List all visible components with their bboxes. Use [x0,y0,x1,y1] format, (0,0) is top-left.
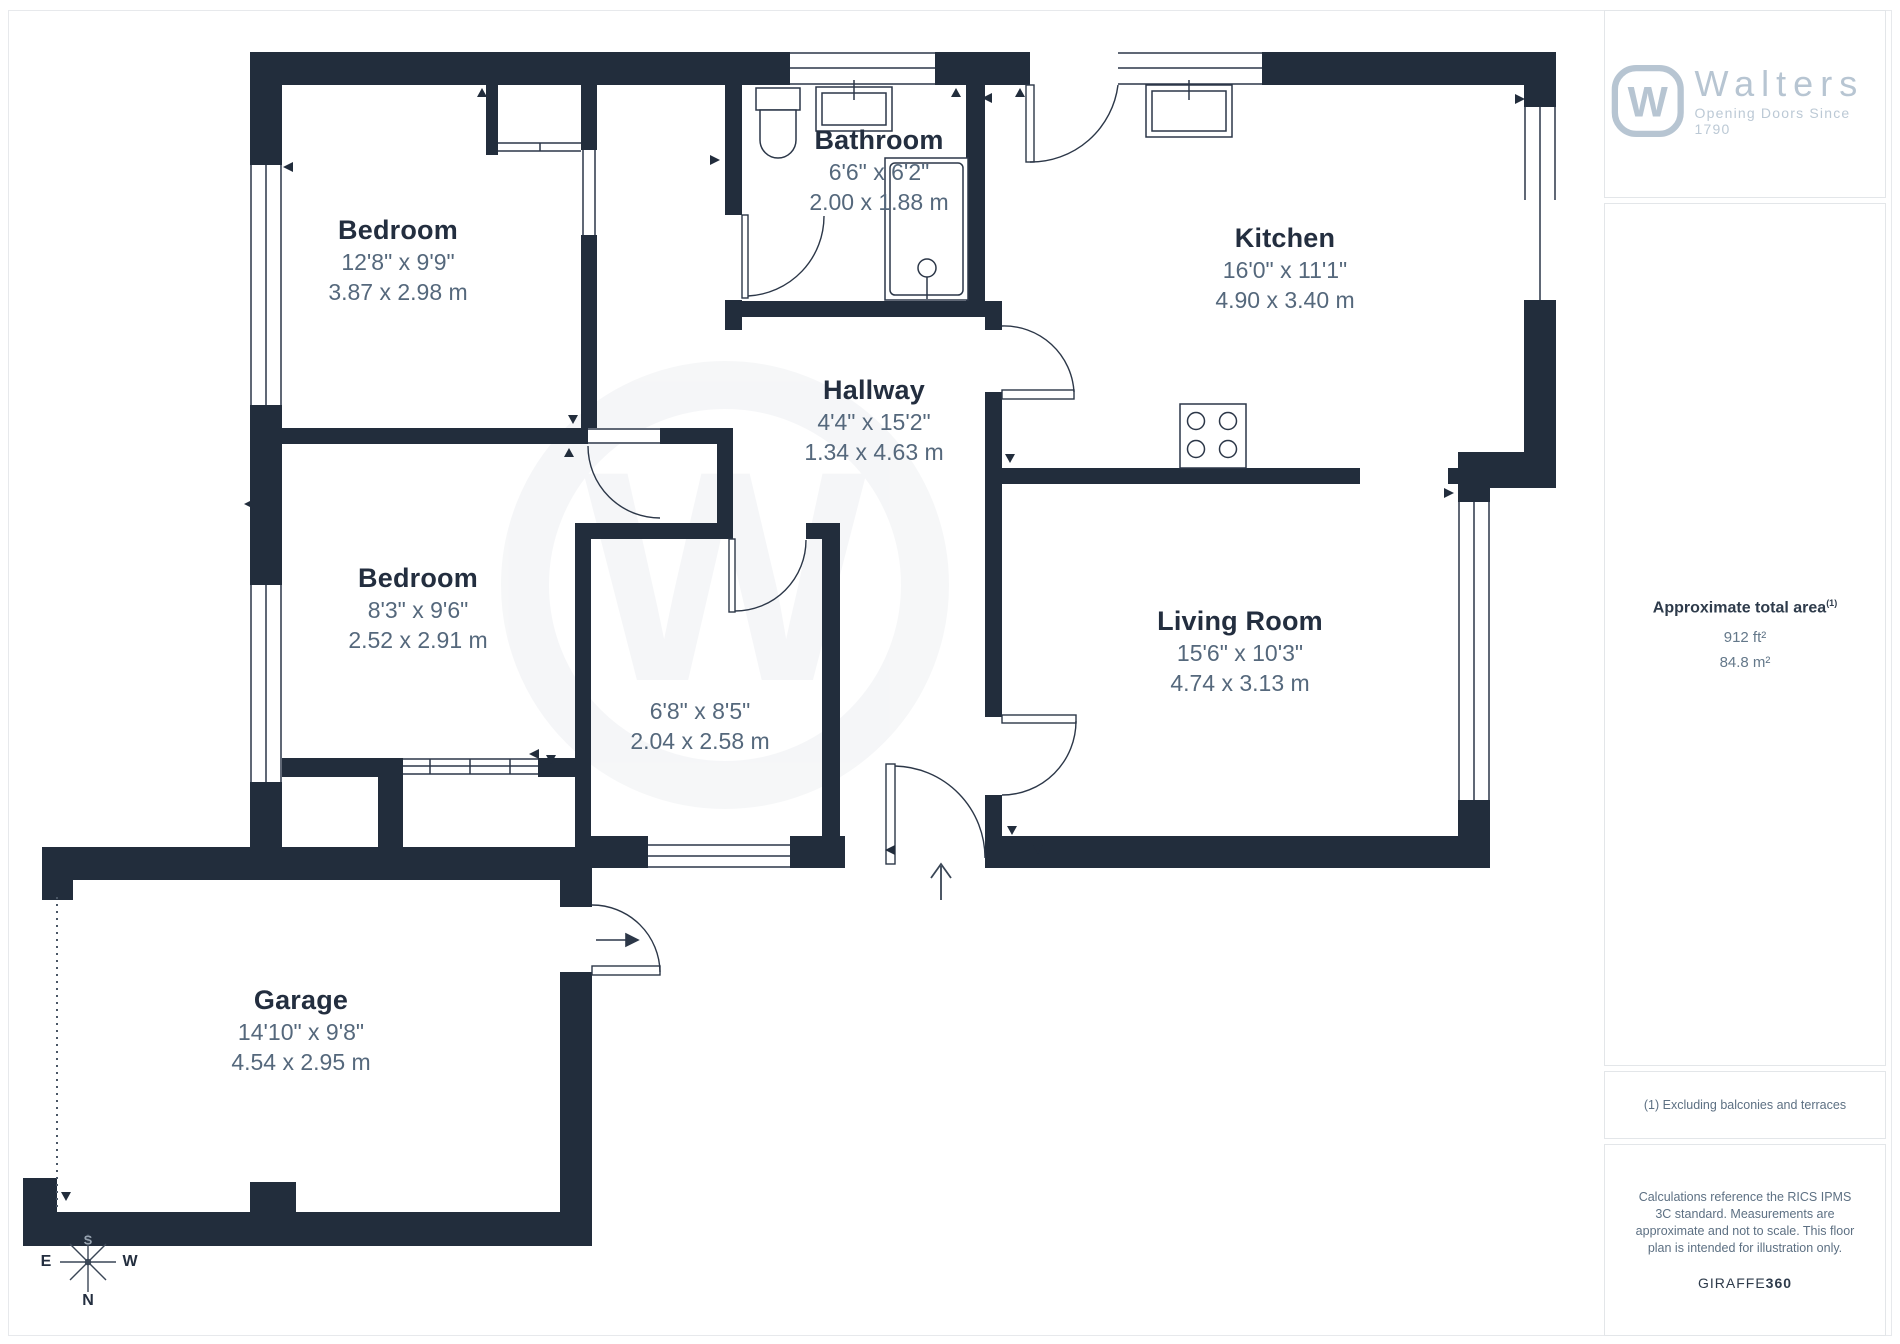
garage-door-arrow [596,934,638,946]
room-name: Garage [231,984,370,1018]
disclaimer-text: Calculations reference the RICS IPMS 3C … [1605,1189,1885,1257]
giraffe360-credit: GIRAFFE360 [1698,1275,1792,1291]
floorplan-drawing: W [0,0,1600,1344]
sidebar-area-panel: Approximate total area(1) 912 ft² 84.8 m… [1604,203,1886,1066]
room-label-store-room: 6'8" x 8'5" 2.04 x 2.58 m [630,697,769,757]
room-dimensions-imperial: 6'8" x 8'5" [630,697,769,727]
room-dimensions-metric: 2.00 x 1.88 m [809,188,948,218]
room-dimensions-metric: 4.74 x 3.13 m [1157,669,1323,699]
sidebar-footnote-panel: (1) Excluding balconies and terraces [1604,1071,1886,1139]
room-name: Kitchen [1215,222,1354,256]
brand-tagline: Opening Doors Since 1790 [1695,105,1885,137]
room-dimensions-imperial: 16'0" x 11'1" [1215,256,1354,286]
total-area-imperial: 912 ft² [1724,629,1767,646]
room-dimensions-metric: 4.90 x 3.40 m [1215,286,1354,316]
room-label-hallway: Hallway 4'4" x 15'2" 1.34 x 4.63 m [804,374,943,468]
room-name: Bedroom [348,562,487,596]
room-dimensions-imperial: 12'8" x 9'9" [328,248,467,278]
room-dimensions-imperial: 15'6" x 10'3" [1157,639,1323,669]
compass-east-label: E [41,1253,52,1271]
room-label-bedroom-1: Bedroom 12'8" x 9'9" 3.87 x 2.98 m [328,214,467,308]
room-name: Bathroom [809,124,948,158]
walters-logo-icon: W [1611,63,1685,139]
room-name: Hallway [804,374,943,408]
room-dimensions-metric: 2.04 x 2.58 m [630,727,769,757]
compass-west-label: W [122,1253,137,1271]
room-label-bedroom-2: Bedroom 8'3" x 9'6" 2.52 x 2.91 m [348,562,487,656]
room-dimensions-imperial: 6'6" x 6'2" [809,158,948,188]
total-area-title: Approximate total area(1) [1653,598,1837,617]
room-label-living-room: Living Room 15'6" x 10'3" 4.74 x 3.13 m [1157,605,1323,699]
room-name: Bedroom [328,214,467,248]
sidebar-logo-panel: W Walters Opening Doors Since 1790 [1604,10,1886,198]
room-label-bathroom: Bathroom 6'6" x 6'2" 2.00 x 1.88 m [809,124,948,218]
footnote-marker: (1) [1826,598,1837,608]
brand-name: Walters [1695,66,1885,102]
sidebar-disclaimer-panel: Calculations reference the RICS IPMS 3C … [1604,1144,1886,1336]
entrance-arrow [931,864,951,900]
room-dimensions-metric: 3.87 x 2.98 m [328,278,467,308]
room-dimensions-imperial: 8'3" x 9'6" [348,596,487,626]
floorplan-page: W [0,0,1900,1344]
room-dimensions-imperial: 14'10" x 9'8" [231,1018,370,1048]
room-label-garage: Garage 14'10" x 9'8" 4.54 x 2.95 m [231,984,370,1078]
room-dimensions-metric: 1.34 x 4.63 m [804,438,943,468]
svg-text:W: W [1628,78,1669,126]
room-name: Living Room [1157,605,1323,639]
compass-north-label: N [82,1292,94,1310]
room-dimensions-metric: 2.52 x 2.91 m [348,626,487,656]
compass-south-label: S [84,1233,93,1248]
room-label-kitchen: Kitchen 16'0" x 11'1" 4.90 x 3.40 m [1215,222,1354,316]
total-area-metric: 84.8 m² [1720,654,1771,671]
room-dimensions-metric: 4.54 x 2.95 m [231,1048,370,1078]
room-dimensions-imperial: 4'4" x 15'2" [804,408,943,438]
footnote-text: (1) Excluding balconies and terraces [1630,1098,1860,1112]
